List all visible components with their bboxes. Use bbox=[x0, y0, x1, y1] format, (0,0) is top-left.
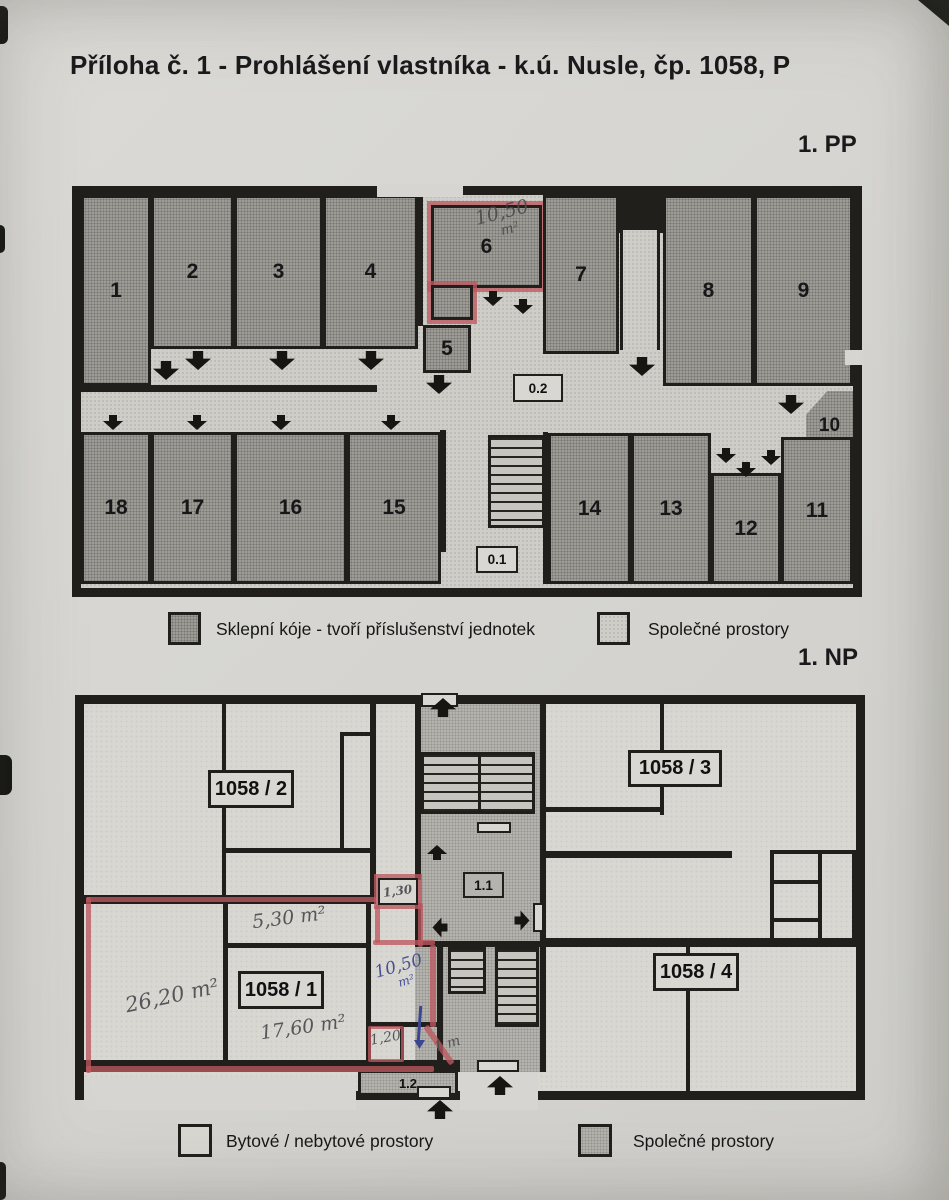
basement-room-13: 13 bbox=[631, 433, 711, 584]
basement-room-16: 16 bbox=[234, 432, 347, 584]
basement-corridor-label: 0.2 bbox=[513, 374, 563, 402]
door-gap bbox=[533, 903, 544, 932]
scan-artifact bbox=[0, 225, 5, 253]
staircase-upper bbox=[421, 752, 535, 814]
wall bbox=[440, 430, 446, 552]
basement-staircase bbox=[488, 435, 545, 528]
wall bbox=[340, 732, 344, 852]
legend-swatch-cellar bbox=[168, 612, 201, 645]
door-arrow-down bbox=[426, 375, 452, 394]
door-arrow-down bbox=[185, 351, 211, 370]
unit-label-1058-4: 1058 / 4 bbox=[653, 953, 739, 991]
basement-room-2: 2 bbox=[151, 195, 234, 349]
door-gap bbox=[477, 822, 511, 833]
basement-room-10: 10 bbox=[806, 391, 853, 439]
scan-artifact bbox=[0, 6, 8, 44]
door-arrow-down bbox=[269, 351, 295, 370]
corridor-branch bbox=[620, 230, 660, 350]
wall bbox=[770, 918, 818, 922]
door-arrow-down bbox=[187, 415, 207, 430]
basement-room-5: 5 bbox=[423, 325, 471, 373]
red-highlight bbox=[375, 905, 380, 943]
door-arrow-down bbox=[358, 351, 384, 370]
wall bbox=[340, 732, 370, 736]
door-arrow-down bbox=[103, 415, 123, 430]
handwritten-area-mid-room: 17,60 m² bbox=[259, 1008, 381, 1044]
door-arrow-down bbox=[381, 415, 401, 430]
floor-label-basement: 1. PP bbox=[798, 131, 857, 159]
ground-floor-plan: 1.2 bbox=[75, 695, 865, 1100]
basement-room-6-annex bbox=[431, 285, 473, 320]
basement-room-18: 18 bbox=[81, 432, 151, 584]
scan-artifact bbox=[918, 0, 949, 26]
door-arrow-down bbox=[153, 361, 179, 380]
basement-room-8: 8 bbox=[663, 195, 754, 386]
legend-label-units: Bytové / nebytové prostory bbox=[226, 1131, 433, 1152]
basement-room-11: 11 bbox=[781, 437, 853, 584]
door-arrow-down bbox=[716, 448, 736, 463]
red-highlight bbox=[86, 1066, 434, 1072]
basement-floor-plan: 1 2 3 4 6 5 7 8 9 10 0.2 18 17 16 15 14 … bbox=[72, 186, 862, 597]
building-edge-cutout bbox=[84, 1077, 356, 1110]
wall bbox=[415, 704, 421, 880]
red-highlight bbox=[86, 897, 376, 902]
wall bbox=[540, 851, 732, 858]
basement-room-1: 1 bbox=[81, 195, 151, 386]
door-arrow-down bbox=[513, 299, 533, 314]
basement-room-4: 4 bbox=[323, 195, 418, 349]
legend-label-cellar: Sklepní kóje - tvoří příslušenství jedno… bbox=[216, 619, 535, 640]
basement-room-3: 3 bbox=[234, 195, 323, 349]
floor-label-ground: 1. NP bbox=[798, 644, 858, 672]
legend-swatch-units bbox=[178, 1124, 212, 1157]
legend-label-common-ground: Společné prostory bbox=[633, 1131, 774, 1152]
bathroom-block bbox=[770, 850, 856, 947]
common-hall-label: 1.1 bbox=[463, 872, 504, 898]
legend-swatch-common-basement bbox=[597, 612, 630, 645]
door-gap bbox=[477, 1060, 519, 1072]
basement-room-15: 15 bbox=[347, 432, 441, 584]
staircase-lower-right bbox=[495, 947, 539, 1027]
handwritten-niche-value: 1,30 bbox=[383, 883, 414, 900]
door-arrow-down bbox=[778, 395, 804, 414]
basement-room-17: 17 bbox=[151, 432, 234, 584]
scanned-document-page: Příloha č. 1 - Prohlášení vlastníka - k.… bbox=[0, 0, 949, 1200]
wall bbox=[222, 848, 374, 853]
red-highlight bbox=[86, 897, 91, 1073]
wall bbox=[540, 938, 856, 947]
red-highlight bbox=[373, 940, 435, 945]
unit-label-1058-2: 1058 / 2 bbox=[208, 770, 294, 808]
door-gap bbox=[845, 350, 863, 365]
basement-room-12: 12 bbox=[711, 473, 781, 584]
door-gap bbox=[377, 184, 463, 197]
door-arrow-down bbox=[761, 450, 781, 465]
entrance-arrow-up bbox=[427, 1100, 453, 1119]
wall bbox=[540, 704, 546, 1072]
basement-room-9: 9 bbox=[754, 195, 853, 386]
unit-label-1058-3: 1058 / 3 bbox=[628, 750, 722, 787]
basement-stair-corridor-label: 0.1 bbox=[476, 546, 518, 573]
door-arrow-down bbox=[483, 291, 503, 306]
basement-room-14: 14 bbox=[548, 433, 631, 584]
scan-artifact bbox=[0, 1162, 6, 1200]
wall bbox=[546, 807, 660, 812]
legend-label-common-basement: Společné prostory bbox=[648, 619, 789, 640]
wall bbox=[818, 850, 822, 947]
scan-artifact bbox=[0, 755, 12, 795]
door-gap bbox=[417, 1086, 451, 1099]
niche-130: 1,30 bbox=[378, 878, 418, 905]
wall bbox=[770, 880, 818, 884]
legend-swatch-common-ground bbox=[578, 1124, 612, 1157]
page-title: Příloha č. 1 - Prohlášení vlastníka - k.… bbox=[70, 50, 790, 81]
door-arrow-down bbox=[629, 357, 655, 376]
wall bbox=[417, 195, 423, 326]
wall bbox=[81, 385, 377, 392]
door-arrow-down bbox=[271, 415, 291, 430]
wall bbox=[223, 943, 371, 948]
wall bbox=[618, 195, 663, 233]
wall bbox=[370, 704, 376, 904]
stair-divider bbox=[478, 755, 481, 811]
staircase-lower-left bbox=[448, 947, 486, 994]
